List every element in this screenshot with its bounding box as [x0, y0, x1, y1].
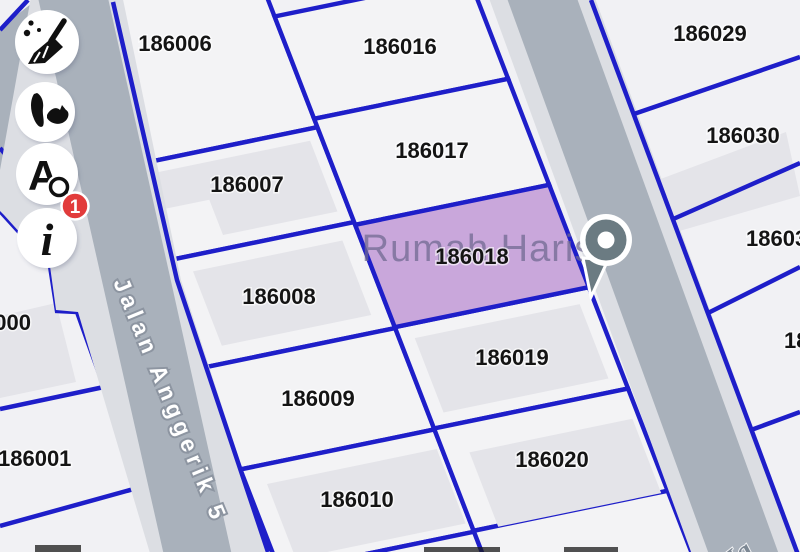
clipped-label — [35, 545, 81, 552]
parcel-label: 186007 — [210, 172, 283, 197]
parcel-label: 186020 — [515, 447, 588, 472]
info-icon: i — [41, 214, 54, 265]
pin-hole — [598, 232, 615, 249]
parcel-label: 186016 — [363, 34, 436, 59]
parcel-label: 186010 — [320, 487, 393, 512]
parcel-label-selected: 186018 — [435, 244, 508, 269]
parcel-label: 186006 — [138, 31, 211, 56]
parcel-label-partial: 18 — [784, 328, 800, 353]
parcel-label: 186030 — [706, 123, 779, 148]
parcel-label-partial: 18603 — [746, 226, 800, 251]
map-canvas[interactable]: Jalan Anggerik 5 Rumah Haris 186006 1860… — [0, 0, 800, 552]
parcel-label: 186019 — [475, 345, 548, 370]
button-circle — [15, 10, 79, 74]
badge-count: 1 — [70, 197, 81, 218]
parcel-label: 186029 — [673, 21, 746, 46]
clipped-label — [424, 547, 500, 552]
parcel-label: 186009 — [281, 386, 354, 411]
clipped-label — [564, 547, 618, 552]
cadastral-map[interactable]: Jalan Anggerik 5 Rumah Haris 186006 1860… — [0, 0, 800, 552]
parcel-label-partial: 000 — [0, 310, 31, 335]
parcel-label: 186017 — [395, 138, 468, 163]
parcel-label-partial: 186001 — [0, 446, 71, 471]
parcel-label: 186008 — [242, 284, 315, 309]
